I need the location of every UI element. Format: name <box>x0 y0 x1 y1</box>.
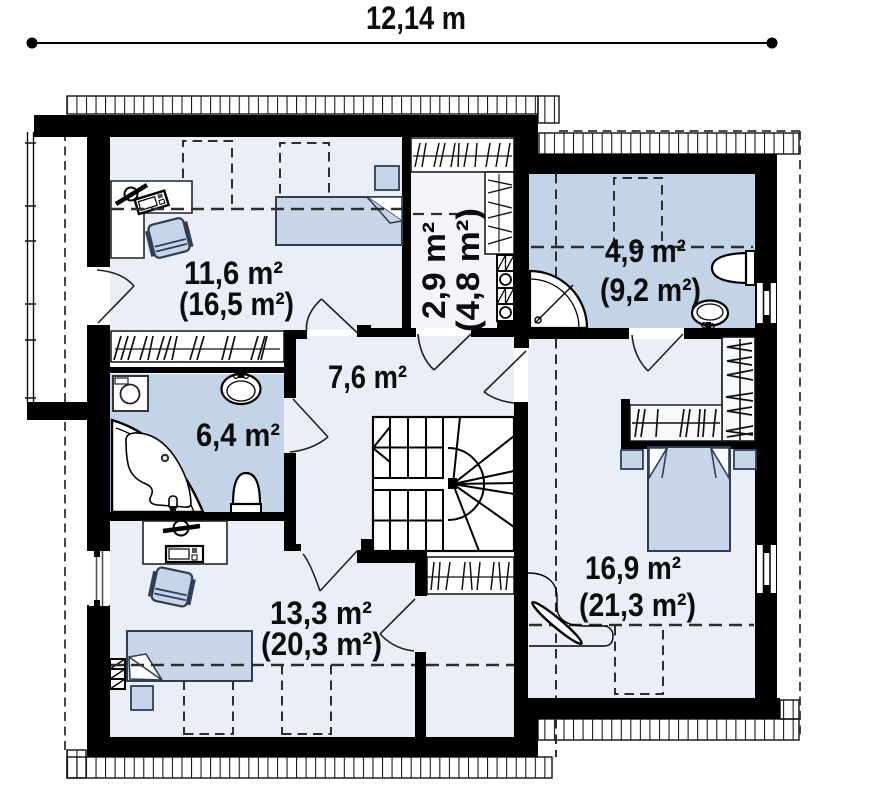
svg-text:(9,2 m²): (9,2 m²) <box>600 272 701 308</box>
svg-text:6,4 m²: 6,4 m² <box>196 417 280 453</box>
svg-text:12,14 m: 12,14 m <box>366 0 466 36</box>
svg-text:4,9 m²: 4,9 m² <box>605 233 686 269</box>
svg-text:(20,3 m²): (20,3 m²) <box>261 626 382 662</box>
svg-text:16,9 m²: 16,9 m² <box>585 550 681 586</box>
svg-text:(4,8 m²): (4,8 m²) <box>450 208 486 332</box>
svg-text:(16,5 m²): (16,5 m²) <box>179 286 294 322</box>
svg-text:(21,3 m²): (21,3 m²) <box>579 587 696 623</box>
svg-text:2,9 m²: 2,9 m² <box>416 222 452 319</box>
svg-text:7,6 m²: 7,6 m² <box>328 359 407 395</box>
